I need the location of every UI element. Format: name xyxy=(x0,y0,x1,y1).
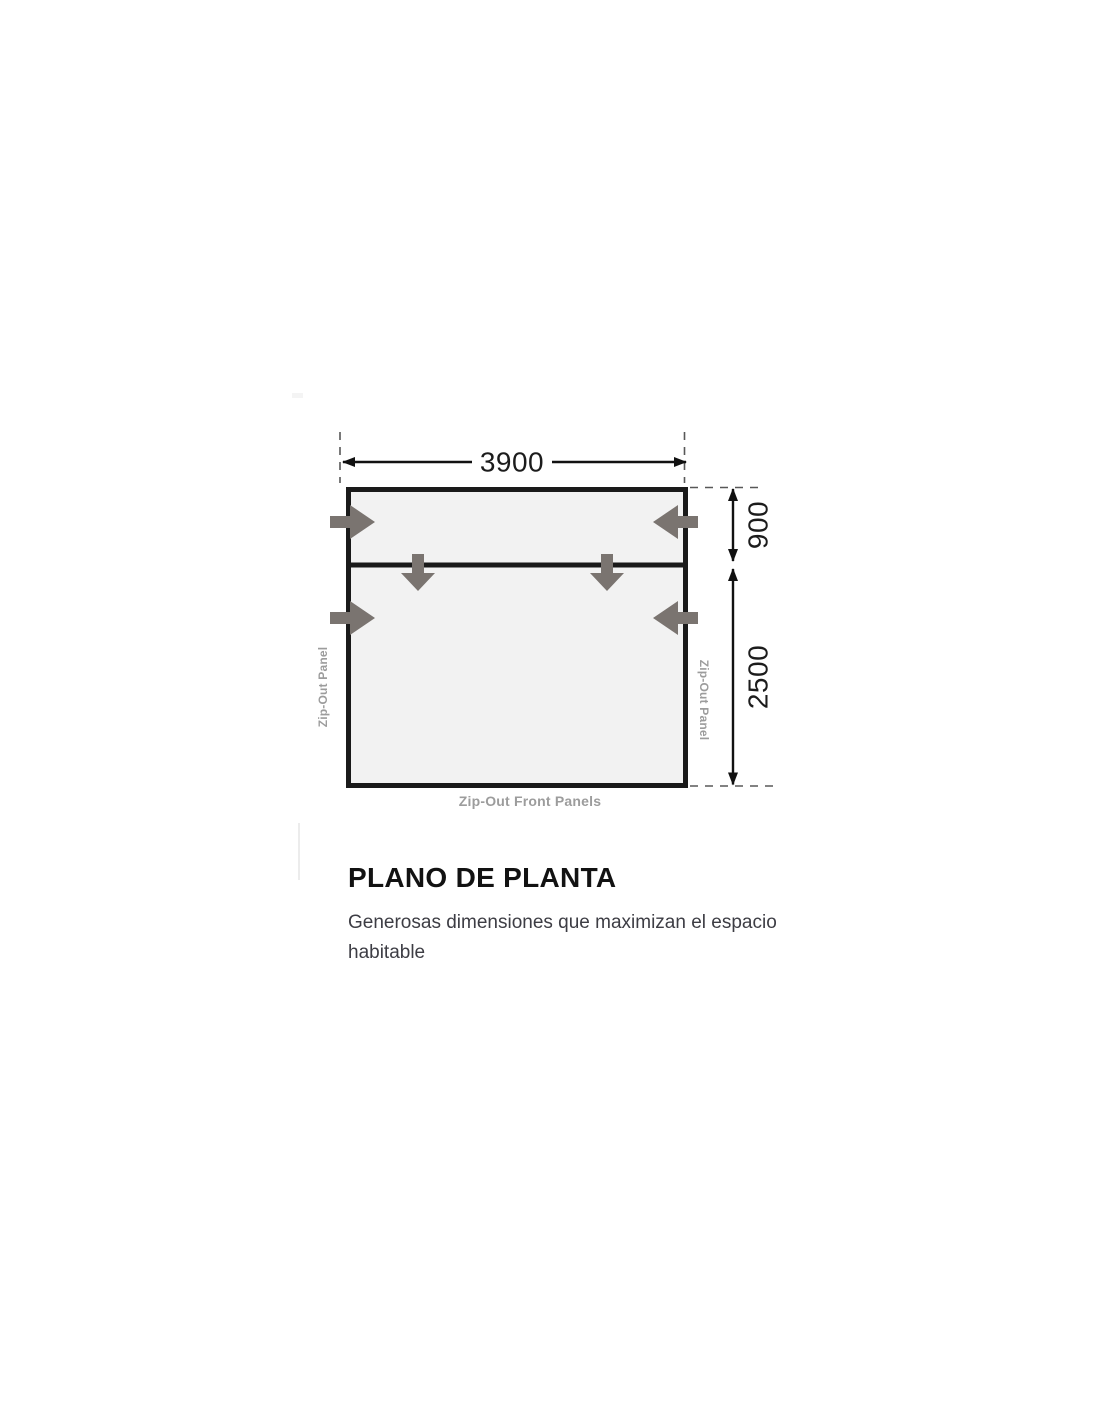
front-panels-label: Zip-Out Front Panels xyxy=(459,793,601,809)
section-subtitle: Generosas dimensiones que maximizan el e… xyxy=(348,908,808,968)
carousel-edge-line xyxy=(298,823,300,880)
floor-plan-outline xyxy=(349,490,686,786)
caption-block: PLANO DE PLANTA Generosas dimensiones qu… xyxy=(348,862,808,968)
width-dimension-label: 3900 xyxy=(480,447,544,478)
floor-plan-diagram: 3900 900 2500 Zip-Out Panel Zip-Out Pane… xyxy=(280,380,800,820)
top-depth-dimension-label: 900 xyxy=(743,501,774,549)
right-panel-label: Zip-Out Panel xyxy=(697,660,711,741)
left-panel-label: Zip-Out Panel xyxy=(316,647,330,728)
page: 3900 900 2500 Zip-Out Panel Zip-Out Pane… xyxy=(0,0,1100,1422)
section-title: PLANO DE PLANTA xyxy=(348,862,808,894)
main-depth-dimension-label: 2500 xyxy=(743,645,774,709)
